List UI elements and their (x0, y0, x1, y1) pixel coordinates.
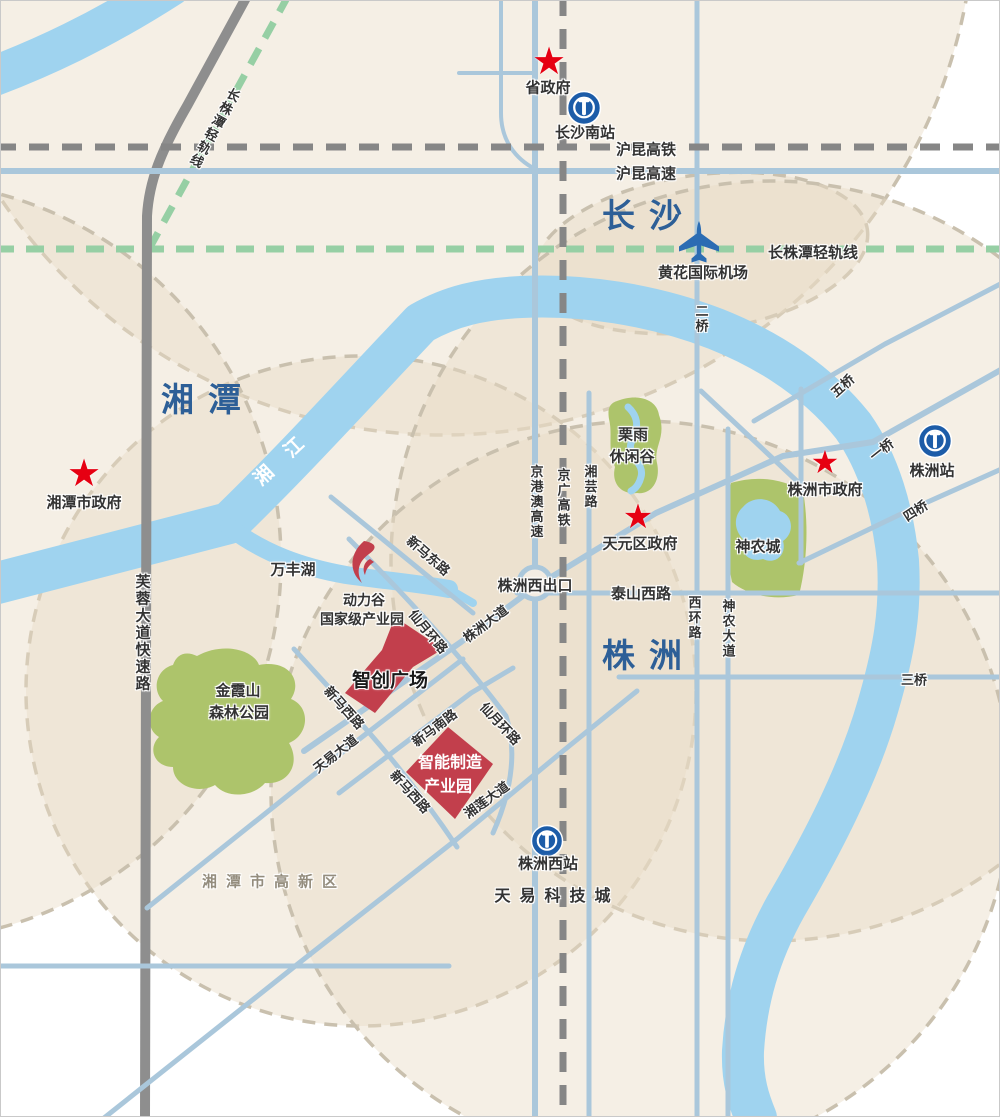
red-star-icon: ★ (623, 500, 653, 534)
label-wanfeng-lake: 万丰湖 (270, 559, 315, 580)
label-xiangtan-gov: 湘潭市政府 (46, 492, 121, 513)
power-valley-logo-icon (343, 539, 383, 587)
label-jinxiashan-park-1: 金霞山 (215, 681, 260, 702)
label-smart-manufacturing-1: 智能制造 (418, 752, 482, 775)
label-shennong-city: 神农城 (735, 536, 780, 557)
label-liyu-valley-1: 栗雨 (618, 425, 648, 446)
label-xiangtan-hightech-zone: 湘潭市高新区 (202, 871, 346, 892)
label-zhuzhou-west-exit: 株洲西出口 (497, 575, 572, 596)
label-xiangyun-road: 湘芸路 (581, 465, 600, 510)
label-power-valley: 动力谷 (343, 590, 385, 610)
label-jinxiashan-park-2: 森林公园 (209, 703, 269, 724)
label-changsha-south-station: 长沙南站 (555, 122, 615, 143)
label-city-zhuzhou: 株洲 (602, 629, 696, 677)
label-jingguang-hsr: 京广高铁 (554, 468, 573, 528)
label-bridge-2: 二桥 (692, 304, 711, 334)
label-liyu-valley-2: 休闲谷 (609, 447, 654, 468)
label-provincial-gov: 省政府 (525, 77, 570, 98)
label-tianyuan-gov: 天元区政府 (602, 533, 677, 554)
label-bridge-3: 三桥 (901, 670, 927, 689)
label-zhuzhou-station: 株洲站 (909, 460, 954, 481)
red-star-icon: ★ (532, 43, 566, 81)
red-star-icon: ★ (811, 446, 840, 478)
label-zhichuang-plaza: 智创广场 (352, 666, 428, 693)
map-base-layer (1, 1, 1000, 1117)
label-huanghua-airport: 黄花国际机场 (658, 262, 748, 283)
label-zhuzhou-gov: 株洲市政府 (787, 479, 862, 500)
label-tianyi-tech-city: 天易科技城 (494, 882, 619, 906)
label-light-rail-right: 长株潭轻轨线 (768, 242, 858, 263)
train-station-icon (918, 424, 953, 459)
label-hukun-expwy: 沪昆高速 (616, 163, 676, 184)
label-furong-expressway: 芙蓉大道快速路 (132, 574, 153, 693)
label-hukun-hsr: 沪昆高铁 (616, 139, 676, 160)
label-jinggangao-expwy: 京港澳高速 (527, 465, 546, 540)
label-city-xiangtan: 湘潭 (161, 373, 255, 421)
label-smart-manufacturing-2: 产业园 (424, 776, 472, 799)
label-shennong-avenue: 神农大道 (719, 599, 738, 659)
red-star-icon: ★ (67, 455, 101, 493)
label-city-changsha: 长沙 (602, 189, 696, 237)
map-canvas: ★ ★ ★ ★ 省政府 长沙南站 沪昆高铁 沪昆高速 长沙 长株潭轻轨线 黄花国… (0, 0, 1000, 1117)
train-station-icon (567, 91, 602, 126)
label-taishan-west-road: 泰山西路 (611, 583, 671, 604)
label-national-industrial-park: 国家级产业园 (320, 609, 404, 629)
label-zhuzhou-west-station: 株洲西站 (518, 853, 578, 874)
